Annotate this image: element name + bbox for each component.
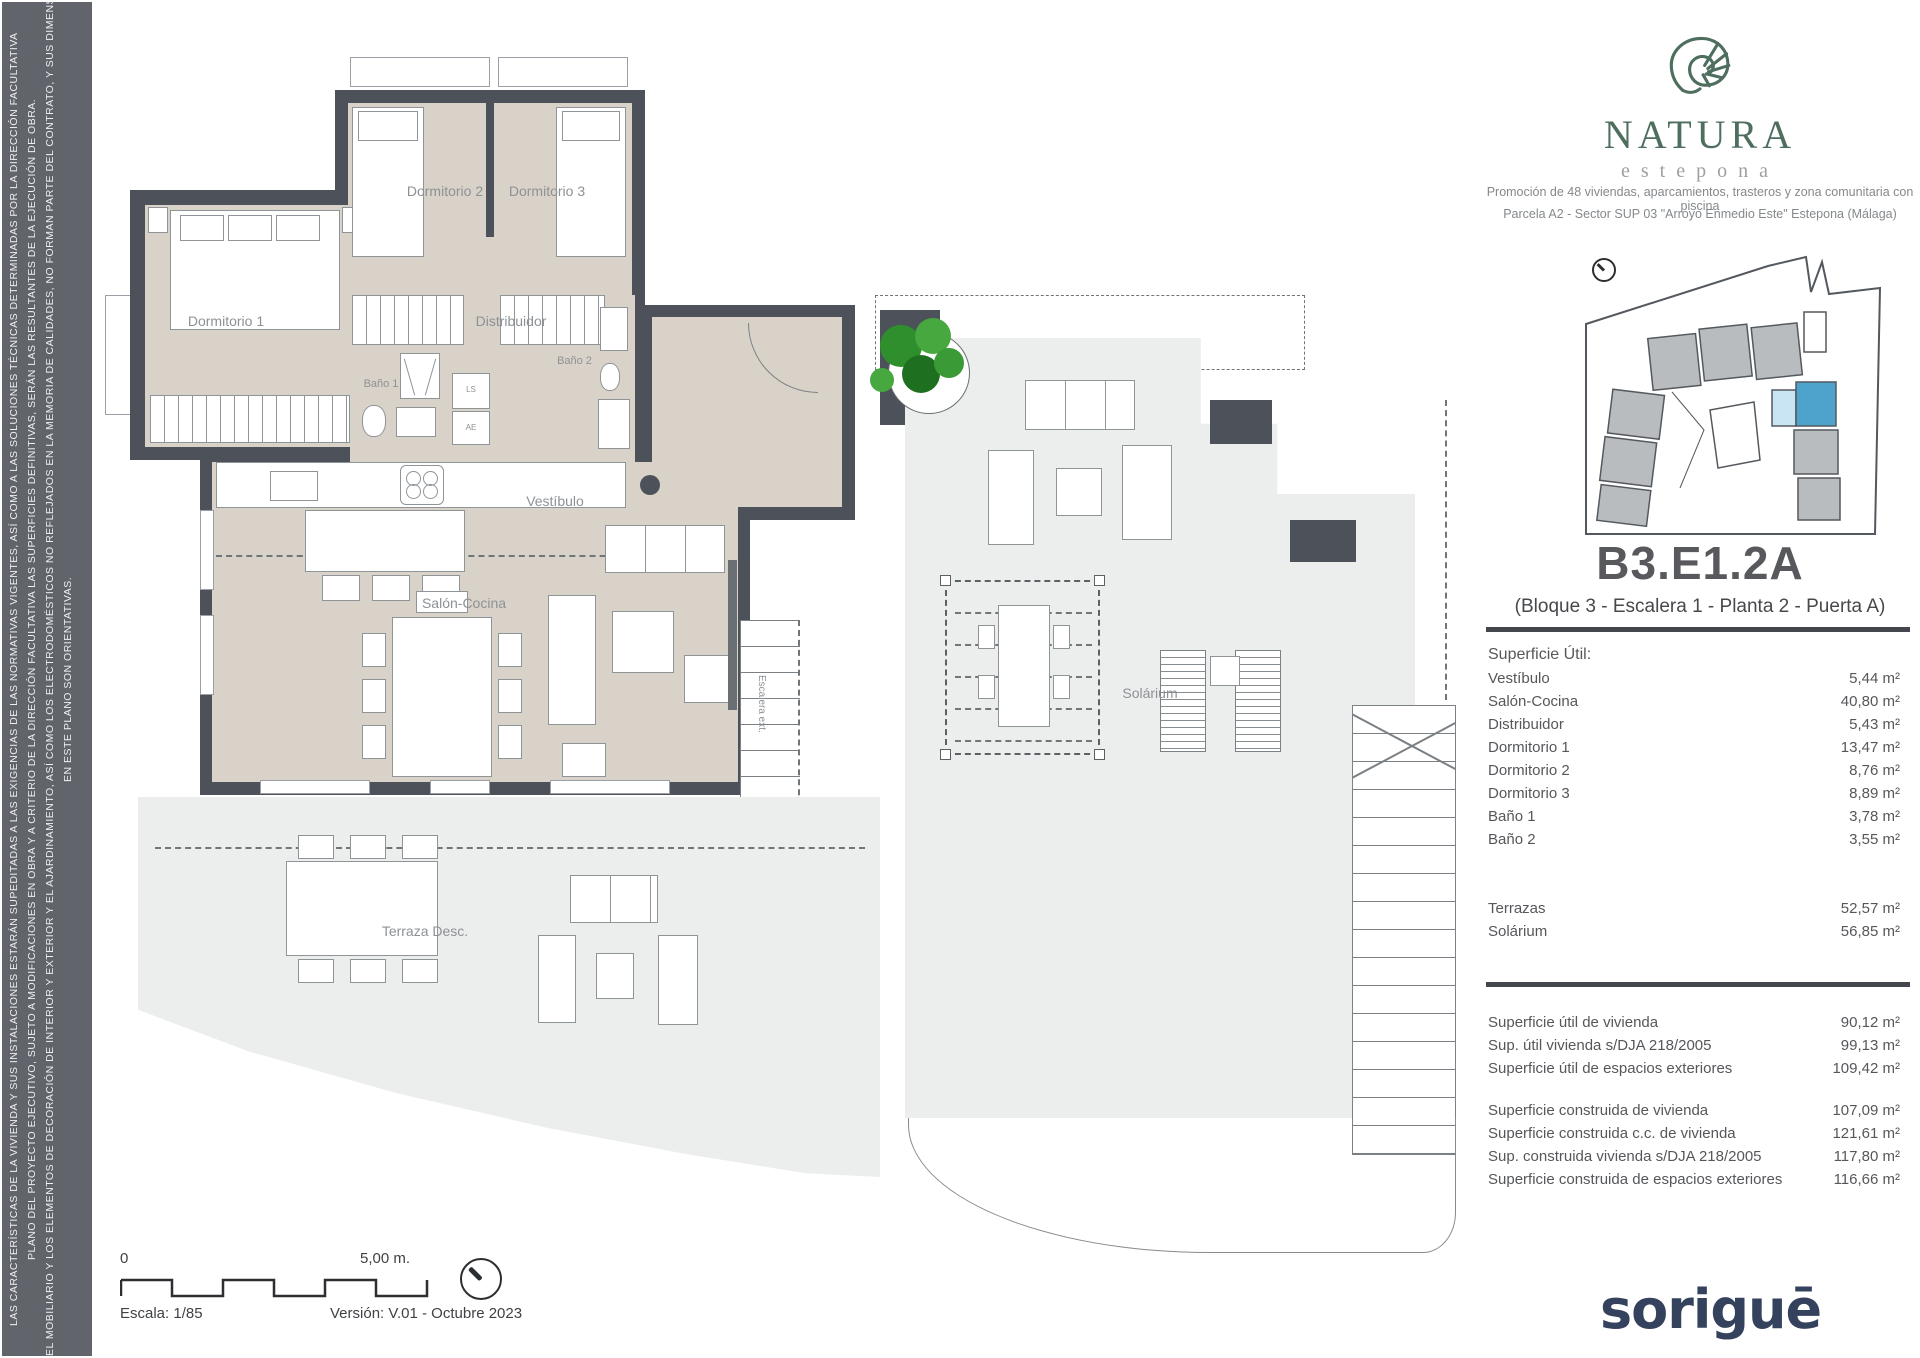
- table-row: Baño 23,55 m²: [1488, 831, 1900, 854]
- kitchen-sink: [270, 471, 318, 501]
- burner: [406, 484, 421, 499]
- dining-table: [392, 617, 492, 777]
- pouf: [562, 743, 606, 777]
- pillow: [180, 215, 224, 241]
- entry-column-dot: [640, 475, 660, 495]
- solarium-table: [1056, 468, 1102, 516]
- terrace-chair: [298, 835, 334, 859]
- table-row: Baño 13,78 m²: [1488, 808, 1900, 831]
- burner: [423, 484, 438, 499]
- terrace-chair: [402, 835, 438, 859]
- toilet-bano2: [600, 363, 620, 391]
- kitchen-island: [305, 510, 465, 572]
- pergola-chair: [1053, 625, 1070, 649]
- cooktop: [400, 465, 444, 505]
- window: [200, 615, 214, 695]
- solarium-lower-terrace: [908, 1118, 1456, 1253]
- row-label: Dormitorio 1: [1488, 739, 1570, 762]
- sofa-top: [605, 525, 725, 573]
- row-label: Dormitorio 2: [1488, 762, 1570, 785]
- balcony-strip: [498, 57, 628, 87]
- row-label: Baño 2: [1488, 831, 1536, 854]
- balcony-strip: [105, 295, 131, 415]
- closet-ae-label: AE: [452, 423, 490, 432]
- pergola-table: [998, 605, 1050, 727]
- brand-block: NATURA estepona: [1480, 28, 1920, 183]
- solarium-sofa: [988, 450, 1034, 545]
- row-label: Salón-Cocina: [1488, 693, 1578, 716]
- chair: [362, 633, 386, 667]
- pergola-post: [1094, 575, 1105, 586]
- dormitorio2-label: Dormitorio 2: [385, 183, 505, 199]
- plant: [934, 348, 964, 378]
- tv-unit: [728, 560, 737, 710]
- terrace-chair: [350, 835, 386, 859]
- row-value: 3,55 m²: [1849, 831, 1900, 854]
- terrace-sofa: [538, 935, 576, 1023]
- nightstand: [148, 207, 168, 233]
- disclaimer-line-1: LAS CARACTERÍSTICAS DE LA VIVIENDA Y SUS…: [8, 2, 24, 1356]
- shower-line: [425, 359, 436, 396]
- window: [430, 780, 490, 794]
- chair: [498, 679, 522, 713]
- surface-util-totals-table: Superficie útil de vivienda90,12 m² Sup.…: [1488, 1014, 1900, 1083]
- row-value: 3,78 m²: [1849, 808, 1900, 831]
- armchair: [612, 611, 674, 673]
- chair: [498, 633, 522, 667]
- brand-subtitle: estepona: [1480, 160, 1920, 183]
- row-value: 56,85 m²: [1841, 923, 1900, 946]
- sorigue-logo: soriguē: [1600, 1278, 1821, 1341]
- solarium-wall-chunk: [1210, 400, 1272, 444]
- table-row: Superficie útil de vivienda90,12 m²: [1488, 1014, 1900, 1037]
- terrace-chair: [350, 959, 386, 983]
- row-label: Vestíbulo: [1488, 670, 1550, 693]
- row-value: 5,44 m²: [1849, 670, 1900, 693]
- row-value: 121,61 m²: [1832, 1125, 1900, 1148]
- terrace-sofa: [570, 875, 658, 923]
- solarium-wall-chunk: [1290, 520, 1356, 562]
- disclaimer-line-4: EN ESTE PLANO SON ORIENTATIVAS.: [62, 2, 78, 1356]
- row-label: Distribuidor: [1488, 716, 1564, 739]
- row-label: Superficie útil de vivienda: [1488, 1014, 1658, 1037]
- pergola-post: [940, 749, 951, 760]
- table-row: Vestíbulo5,44 m²: [1488, 670, 1900, 693]
- table-row: Solárium56,85 m²: [1488, 923, 1900, 946]
- table-row: Salón-Cocina40,80 m²: [1488, 693, 1900, 716]
- table-row: Dormitorio 28,76 m²: [1488, 762, 1900, 785]
- sofa-side: [548, 595, 596, 725]
- promo-line-2: Parcela A2 - Sector SUP 03 "Arroyo Enmed…: [1480, 207, 1920, 221]
- row-value: 117,80 m²: [1834, 1148, 1900, 1171]
- table-row: Distribuidor5,43 m²: [1488, 716, 1900, 739]
- table-row: Dormitorio 113,47 m²: [1488, 739, 1900, 762]
- terraza-floor: [138, 797, 880, 1177]
- disclaimer-bar: LAS CARACTERÍSTICAS DE LA VIVIENDA Y SUS…: [2, 2, 92, 1356]
- compass-needle: [468, 1266, 483, 1281]
- disclaimer-line-3: EL MOBILIARIO Y LOS ELEMENTOS DE DECORAC…: [44, 2, 60, 1356]
- surface-table-title: Superficie Útil:: [1488, 646, 1591, 664]
- wardrobe-dorm1: [150, 395, 350, 443]
- side-table: [684, 655, 732, 703]
- pergola-post: [940, 575, 951, 586]
- row-label: Superficie construida de espacios exteri…: [1488, 1171, 1782, 1194]
- table-row: Superficie construida c.c. de vivienda12…: [1488, 1125, 1900, 1148]
- vestibulo-label: Vestíbulo: [500, 493, 610, 509]
- pergola-post: [1094, 749, 1105, 760]
- terraza-label: Terraza Desc.: [355, 923, 495, 939]
- row-value: 52,57 m²: [1841, 900, 1900, 923]
- bano2-label: Baño 2: [542, 355, 607, 367]
- toilet-bano1: [362, 405, 386, 437]
- pillow: [358, 111, 418, 141]
- window: [550, 780, 670, 794]
- scale-zero: 0: [120, 1250, 128, 1267]
- row-label: Sup. construida vivienda s/DJA 218/2005: [1488, 1148, 1762, 1171]
- row-value: 8,76 m²: [1849, 762, 1900, 785]
- terrace-chair: [298, 959, 334, 983]
- plant: [870, 368, 894, 392]
- pergola-chair: [978, 675, 995, 699]
- row-label: Dormitorio 3: [1488, 785, 1570, 808]
- solarium-sofa: [1025, 380, 1135, 430]
- lounger-table: [1210, 656, 1240, 686]
- row-label: Terrazas: [1488, 900, 1546, 923]
- chair: [498, 725, 522, 759]
- pillow: [276, 215, 320, 241]
- floorplan-sheet: LAS CARACTERÍSTICAS DE LA VIVIENDA Y SUS…: [0, 0, 1920, 1358]
- dormitorio1-label: Dormitorio 1: [170, 313, 282, 329]
- terrace-chair: [402, 959, 438, 983]
- terrace-table: [286, 861, 438, 956]
- wardrobe-dorm2: [352, 295, 464, 345]
- scale-length: 5,00 m.: [360, 1250, 410, 1267]
- divider-rule: [1486, 627, 1910, 632]
- row-value: 99,13 m²: [1841, 1037, 1900, 1060]
- row-value: 8,89 m²: [1849, 785, 1900, 808]
- row-value: 13,47 m²: [1841, 739, 1900, 762]
- pillow: [228, 215, 272, 241]
- sink-bano2: [600, 307, 628, 351]
- terraza-dashed-line: [155, 847, 865, 849]
- row-value: 107,09 m²: [1832, 1102, 1900, 1125]
- pergola-beam: [955, 740, 1092, 742]
- north-compass-icon: [460, 1258, 502, 1300]
- scale-bar: [120, 1272, 430, 1300]
- row-label: Solárium: [1488, 923, 1547, 946]
- terrace-sofa: [658, 935, 698, 1025]
- escalera-label: Escalera ext.: [756, 675, 767, 733]
- salon-cocina-label: Salón-Cocina: [398, 595, 530, 611]
- table-row: Superficie construida de vivienda107,09 …: [1488, 1102, 1900, 1125]
- disclaimer-line-2: PLANO DEL PROYECTO EJECUTIVO, SUJETO A M…: [26, 2, 42, 1356]
- table-row: Superficie útil de espacios exteriores10…: [1488, 1060, 1900, 1083]
- table-row: Superficie construida de espacios exteri…: [1488, 1171, 1900, 1194]
- terrace-table-small: [596, 953, 634, 999]
- surface-exterior-table: Terrazas52,57 m² Solárium56,85 m²: [1488, 900, 1900, 946]
- bathtub-bano2: [598, 399, 630, 449]
- surface-rooms-table: Vestíbulo5,44 m² Salón-Cocina40,80 m² Di…: [1488, 670, 1900, 854]
- sink-bano1: [396, 407, 436, 437]
- stairs-landing: [1352, 705, 1456, 795]
- pergola-chair: [978, 625, 995, 649]
- shower-bano1: [400, 353, 440, 399]
- table-row: Sup. construida vivienda s/DJA 218/20051…: [1488, 1148, 1900, 1171]
- nautilus-logo-icon: [1661, 28, 1739, 106]
- row-label: Superficie útil de espacios exteriores: [1488, 1060, 1732, 1083]
- solarium-label: Solárium: [1090, 685, 1210, 701]
- chair: [362, 725, 386, 759]
- table-row: Dormitorio 38,89 m²: [1488, 785, 1900, 808]
- solarium-sofa: [1122, 445, 1172, 540]
- distribuidor-label: Distribuidor: [450, 313, 572, 329]
- closet-ls-label: LS: [452, 385, 490, 394]
- solarium-plan: Solárium: [860, 280, 1460, 1260]
- row-value: 40,80 m²: [1841, 693, 1900, 716]
- table-row: Sup. útil vivienda s/DJA 218/200599,13 m…: [1488, 1037, 1900, 1060]
- row-value: 90,12 m²: [1841, 1014, 1900, 1037]
- bano1-label: Baño 1: [346, 378, 416, 390]
- stool: [322, 575, 360, 601]
- row-label: Superficie construida de vivienda: [1488, 1102, 1708, 1125]
- table-row: Terrazas52,57 m²: [1488, 900, 1900, 923]
- pillow: [562, 111, 620, 141]
- unit-code: B3.E1.2A: [1480, 536, 1920, 590]
- row-value: 109,42 m²: [1832, 1060, 1900, 1083]
- balcony-strip: [350, 57, 490, 87]
- divider-rule: [1486, 982, 1910, 987]
- pergola-chair: [1053, 675, 1070, 699]
- site-plan: [1572, 252, 1917, 540]
- main-floor-plan: LS AE: [100, 55, 900, 1245]
- window: [260, 780, 370, 794]
- row-label: Sup. útil vivienda s/DJA 218/2005: [1488, 1037, 1711, 1060]
- solarium-dashed-edge: [1445, 400, 1447, 700]
- scale-text: Escala: 1/85: [120, 1305, 203, 1322]
- chair: [362, 679, 386, 713]
- sun-lounger: [1160, 650, 1206, 752]
- row-label: Superficie construida c.c. de vivienda: [1488, 1125, 1736, 1148]
- brand-name: NATURA: [1480, 111, 1920, 158]
- sun-lounger: [1235, 650, 1281, 752]
- row-value: 116,66 m²: [1834, 1171, 1900, 1194]
- unit-subtitle: (Bloque 3 - Escalera 1 - Planta 2 - Puer…: [1480, 596, 1920, 618]
- surface-built-totals-table: Superficie construida de vivienda107,09 …: [1488, 1102, 1900, 1194]
- window: [200, 510, 214, 590]
- row-value: 5,43 m²: [1849, 716, 1900, 739]
- version-text: Versión: V.01 - Octubre 2023: [330, 1305, 522, 1322]
- dormitorio3-label: Dormitorio 3: [492, 183, 602, 199]
- row-label: Baño 1: [1488, 808, 1536, 831]
